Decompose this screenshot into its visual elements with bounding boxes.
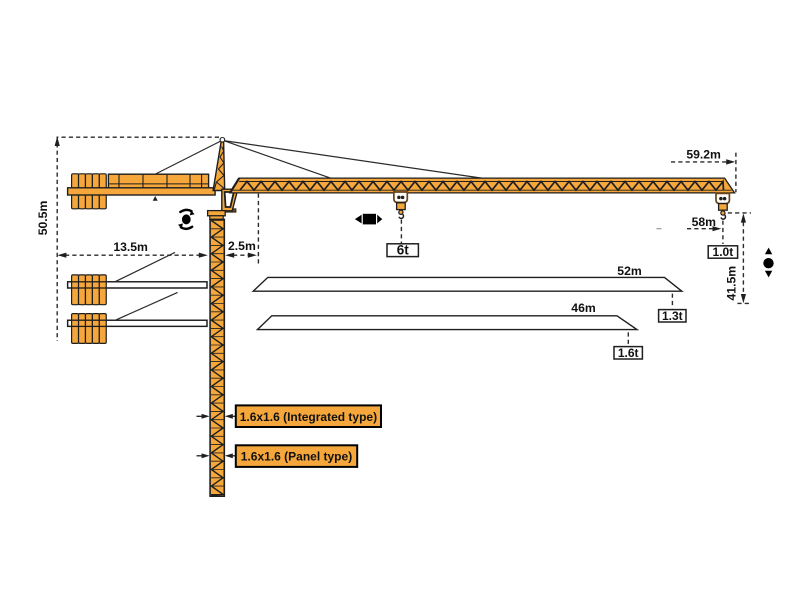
svg-text:59.2m: 59.2m <box>686 148 721 162</box>
svg-text:2.5m: 2.5m <box>228 239 256 253</box>
svg-text:1.6x1.6 (Panel type): 1.6x1.6 (Panel type) <box>241 450 352 464</box>
svg-text:6t: 6t <box>397 243 410 258</box>
svg-text:1.0t: 1.0t <box>713 245 734 259</box>
svg-text:46m: 46m <box>571 301 596 315</box>
svg-text:58m: 58m <box>692 215 717 229</box>
svg-text:41.5m: 41.5m <box>725 266 739 301</box>
svg-text:50.5m: 50.5m <box>36 201 50 236</box>
svg-text:1.3t: 1.3t <box>662 309 683 323</box>
svg-text:13.5m: 13.5m <box>113 240 148 254</box>
svg-text:1.6t: 1.6t <box>618 346 639 360</box>
svg-text:52m: 52m <box>617 264 642 278</box>
svg-text:1.6x1.6 (Integrated type): 1.6x1.6 (Integrated type) <box>240 410 377 424</box>
